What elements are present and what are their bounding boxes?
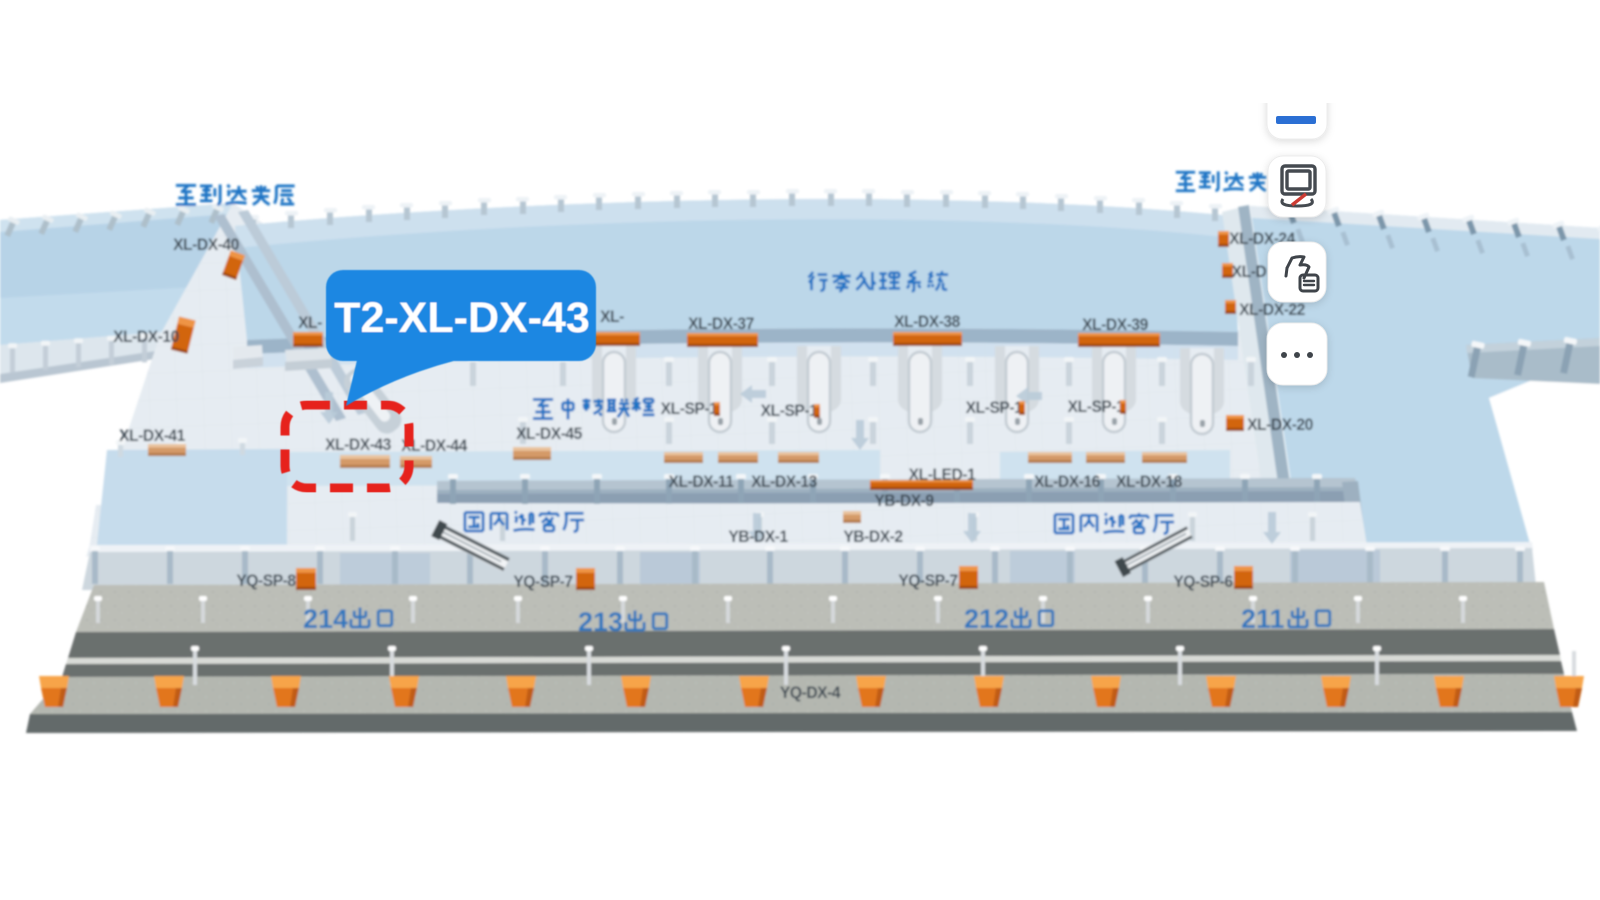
svg-text:XL-DX-45: XL-DX-45: [516, 424, 582, 443]
svg-text:XL-SP-1: XL-SP-1: [966, 398, 1023, 417]
svg-text:XL-: XL-: [298, 313, 322, 332]
svg-text:XL-D: XL-D: [1232, 262, 1267, 281]
svg-text:XL-SP-1: XL-SP-1: [1068, 397, 1125, 416]
svg-text:XL-DX-40: XL-DX-40: [173, 235, 239, 254]
svg-text:XL-DX-10: XL-DX-10: [113, 327, 179, 346]
svg-text:211: 211: [1241, 604, 1285, 634]
svg-text:YB-DX-2: YB-DX-2: [843, 527, 903, 546]
svg-text:XL-DX-43: XL-DX-43: [325, 435, 391, 454]
svg-text:YQ-DX-4: YQ-DX-4: [780, 683, 841, 702]
svg-text:XL-DX-11: XL-DX-11: [669, 472, 734, 491]
svg-text:XL-DX-13: XL-DX-13: [751, 472, 817, 491]
svg-text:YQ-SP-7: YQ-SP-7: [513, 572, 573, 591]
svg-text:XL-LED-1: XL-LED-1: [909, 465, 976, 484]
svg-text:XL-SP-1: XL-SP-1: [661, 399, 718, 418]
svg-text:YQ-SP-7: YQ-SP-7: [898, 571, 958, 590]
svg-text:213: 213: [578, 607, 623, 637]
svg-text:XL-DX-22: XL-DX-22: [1239, 300, 1305, 319]
svg-text:XL-DX-39: XL-DX-39: [1082, 315, 1148, 334]
svg-text:XL-SP-1: XL-SP-1: [761, 401, 818, 420]
svg-text:XL-DX-41: XL-DX-41: [119, 426, 185, 445]
svg-text:T2-XL-DX-43: T2-XL-DX-43: [334, 294, 590, 342]
svg-text:XL-DX-37: XL-DX-37: [688, 314, 754, 333]
svg-text:XL-DX-16: XL-DX-16: [1034, 472, 1100, 491]
svg-text:YQ-SP-8: YQ-SP-8: [236, 571, 296, 590]
svg-text:XL-DX-18: XL-DX-18: [1116, 472, 1182, 491]
svg-text:XL-DX-38: XL-DX-38: [894, 312, 960, 331]
svg-text:212: 212: [964, 604, 1009, 634]
svg-text:YB-DX-1: YB-DX-1: [728, 527, 788, 546]
svg-text:214: 214: [303, 604, 348, 634]
svg-text:XL-: XL-: [600, 307, 624, 326]
svg-text:YB-DX-9: YB-DX-9: [874, 491, 934, 510]
svg-text:XL-DX-20: XL-DX-20: [1247, 415, 1313, 434]
svg-text:YQ-SP-6: YQ-SP-6: [1173, 572, 1233, 591]
